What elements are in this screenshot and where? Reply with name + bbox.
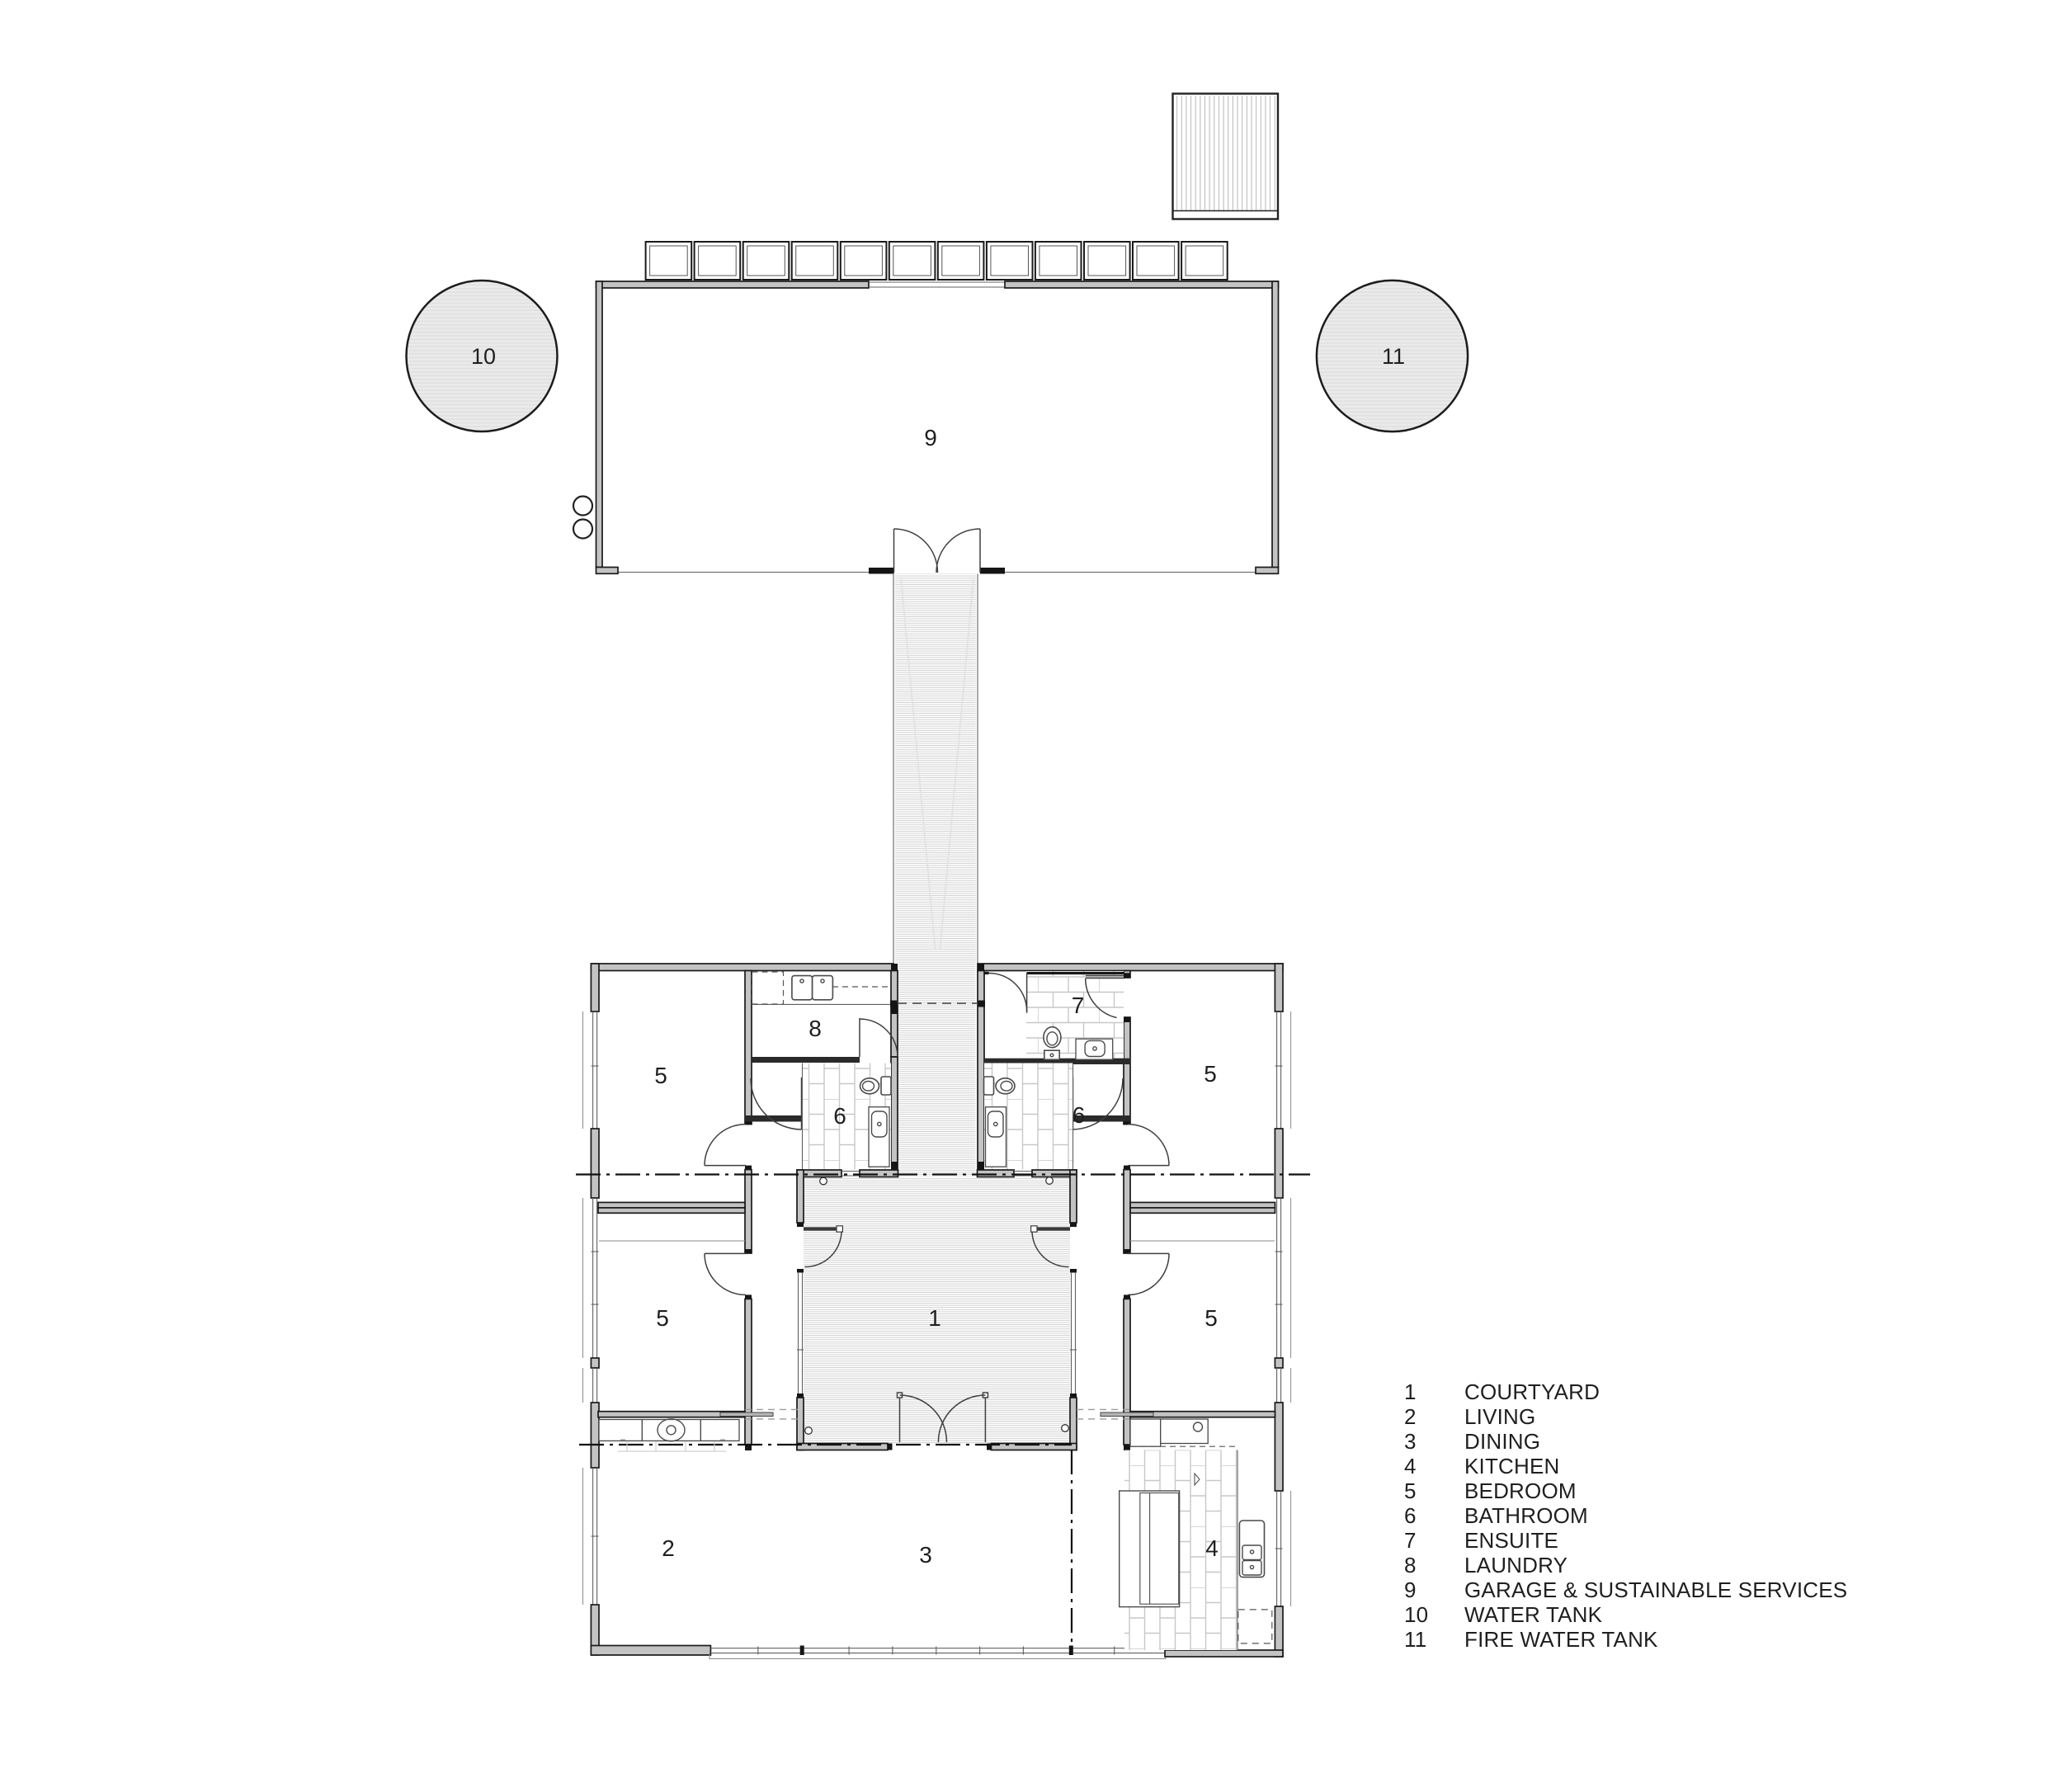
svg-text:ENSUITE: ENSUITE: [1464, 1528, 1558, 1553]
svg-text:KITCHEN: KITCHEN: [1464, 1454, 1560, 1478]
svg-text:9: 9: [924, 425, 937, 450]
svg-text:4: 4: [1404, 1454, 1417, 1478]
svg-text:COURTYARD: COURTYARD: [1464, 1379, 1600, 1404]
svg-text:11: 11: [1404, 1627, 1426, 1652]
svg-text:9: 9: [1404, 1577, 1417, 1602]
svg-text:6: 6: [833, 1103, 846, 1129]
svg-text:5: 5: [654, 1063, 667, 1088]
svg-text:WATER TANK: WATER TANK: [1464, 1602, 1603, 1627]
svg-text:8: 8: [1404, 1553, 1417, 1577]
svg-text:7: 7: [1404, 1528, 1417, 1553]
svg-text:5: 5: [1204, 1061, 1217, 1087]
svg-text:6: 6: [1404, 1503, 1417, 1528]
svg-text:2: 2: [662, 1535, 675, 1561]
svg-text:3: 3: [1404, 1429, 1417, 1454]
svg-text:10: 10: [1404, 1602, 1428, 1627]
svg-text:10: 10: [471, 344, 496, 369]
svg-text:LIVING: LIVING: [1464, 1404, 1535, 1429]
svg-text:GARAGE & SUSTAINABLE SERVICES: GARAGE & SUSTAINABLE SERVICES: [1464, 1577, 1847, 1602]
svg-text:5: 5: [656, 1305, 669, 1331]
svg-text:6: 6: [1072, 1102, 1086, 1128]
svg-text:7: 7: [1072, 993, 1085, 1018]
svg-text:8: 8: [808, 1016, 822, 1041]
svg-text:2: 2: [1404, 1404, 1417, 1429]
svg-text:DINING: DINING: [1464, 1429, 1540, 1454]
svg-text:BATHROOM: BATHROOM: [1464, 1503, 1588, 1528]
svg-text:11: 11: [1382, 344, 1405, 369]
svg-text:LAUNDRY: LAUNDRY: [1464, 1553, 1567, 1577]
svg-text:4: 4: [1205, 1535, 1219, 1561]
svg-text:1: 1: [928, 1305, 941, 1331]
svg-text:1: 1: [1404, 1379, 1417, 1404]
svg-text:3: 3: [919, 1542, 932, 1568]
svg-text:FIRE WATER TANK: FIRE WATER TANK: [1464, 1627, 1658, 1652]
svg-text:5: 5: [1404, 1478, 1417, 1503]
svg-text:BEDROOM: BEDROOM: [1464, 1478, 1577, 1503]
svg-text:5: 5: [1204, 1305, 1218, 1331]
